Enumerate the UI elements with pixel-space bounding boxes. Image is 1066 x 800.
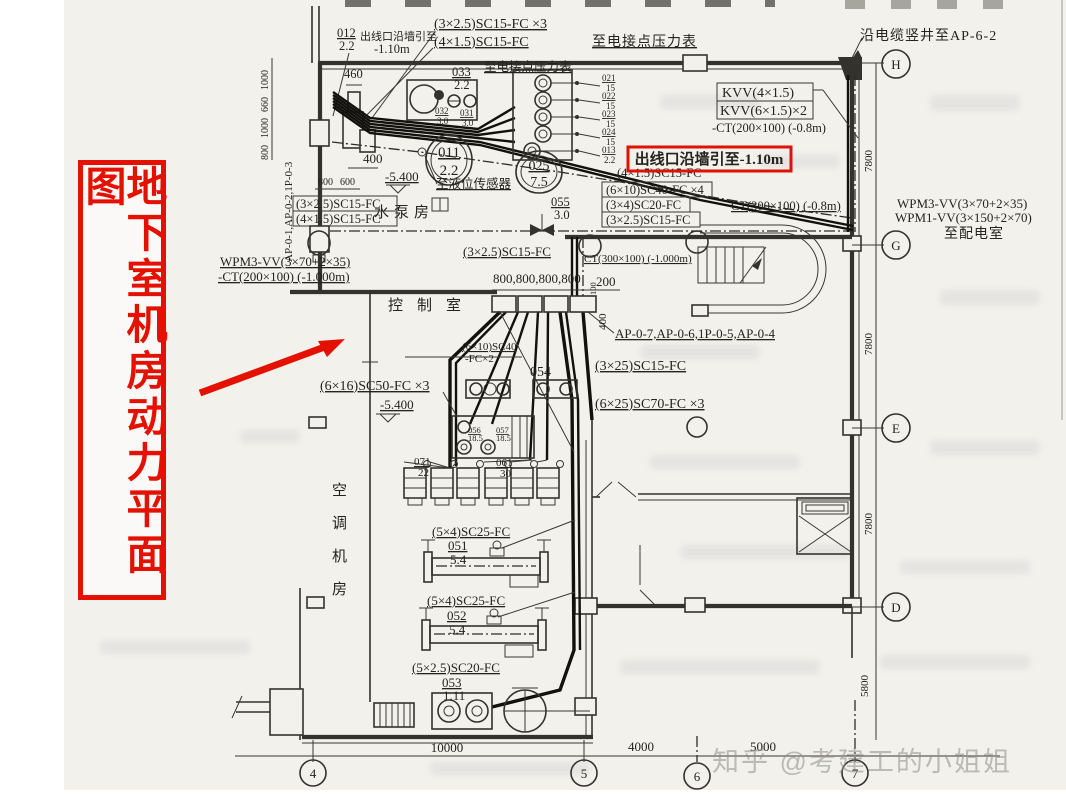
cable-label: (6×10)SC40-FC ×4 (606, 183, 705, 197)
eq-054: 054 (530, 365, 551, 380)
dim-400: 400 (363, 151, 383, 166)
cable-label: (5×2.5)SC20-FC (412, 660, 500, 675)
cable-label: KVV(6×1.5)×2 (720, 104, 807, 119)
cable-label: WPM1-VV(3×150+2×70) (895, 210, 1032, 225)
heat-exchanger-051 (421, 540, 551, 587)
drawing-title-text: 地下室机房动力平面图 (81, 165, 163, 595)
dim-800x4: 800,800,800,800 (493, 271, 581, 286)
eq-012-den: 2.2 (339, 39, 355, 53)
dim-800: 800 (318, 177, 333, 188)
dim-100: 100 (588, 282, 598, 295)
cable-label: (3×2.5)SC15-FC (296, 197, 381, 211)
eq-021-num: 021 (602, 73, 616, 83)
dimension-lines (235, 50, 1000, 789)
eq-012-num: 012 (337, 26, 356, 40)
eq-032-den: 3.0 (437, 116, 449, 126)
room-pump: 水泵房 (374, 204, 434, 221)
dim-7800-a: 7800 (863, 150, 875, 173)
scanned-drawing-page: 012 2.2 出线口沿墙引至 -1.10m (3×2.5)SC15-FC ×3… (0, 0, 1066, 800)
eq-025-den: 7.5 (530, 175, 548, 190)
dist-room-note: 至配电室 (944, 225, 1004, 242)
grid-6: 6 (694, 769, 701, 784)
outlet-note-red: 出线口沿墙引至-1.10m (635, 150, 784, 168)
dim-200: 200 (596, 274, 616, 289)
drawing-labels: 012 2.2 出线口沿墙引至 -1.10m (3×2.5)SC15-FC ×3… (218, 17, 1032, 784)
level-5400-a: -5.400 (385, 169, 419, 184)
watermark-text: 知乎 @考建工的小姐姐 (712, 740, 1066, 779)
eq-056-den: 18.5 (468, 433, 483, 443)
eq-052-num: 052 (447, 608, 467, 623)
cable-label: (6×25)SC70-FC ×3 (595, 397, 705, 412)
cable-label: (3×25)SC15-FC (595, 359, 686, 374)
dim-7800-c: 7800 (863, 513, 875, 536)
eq-013-den: 2.2 (604, 155, 615, 165)
grid-G: G (891, 238, 900, 253)
heat-exchanger-052 (419, 608, 549, 657)
outlet-note-top-level: -1.10m (374, 42, 410, 56)
eq-031-num: 031 (460, 108, 474, 118)
room-ac-char4: 房 (332, 581, 347, 598)
dim-660: 660 (260, 97, 271, 112)
dim-600: 600 (340, 177, 355, 188)
eq-051-den: 5.4 (450, 552, 467, 567)
eq-013-num: 013 (602, 145, 616, 155)
cable-label: (4×1.5)SC15-FC (617, 166, 702, 180)
grid-4: 4 (310, 766, 317, 781)
cable-shaft-note: 沿电缆竖井至AP-6-2 (860, 28, 997, 44)
outlet-note-top: 出线口沿墙引至 (360, 29, 437, 43)
dim-1000a: 1000 (260, 70, 271, 90)
cable-label: (6×10)SC40 (462, 341, 517, 353)
cable-label: (4×1.5)SC15-FC (296, 212, 381, 226)
eq-025-num: 025 (529, 159, 550, 174)
dim-800v: 800 (260, 145, 271, 160)
eq-055-den: 3.0 (554, 208, 570, 222)
cable-label: -CT(200×100) (-1.000m) (218, 269, 350, 284)
grid-E: E (892, 421, 900, 436)
dim-7800-b: 7800 (863, 333, 875, 356)
room-control: 控制室 (388, 297, 475, 314)
cable-label: CT(300×100) (-1.000m) (584, 253, 692, 265)
ap-panels-mid: AP-0-7,AP-0-6,1P-0-5,AP-0-4 (615, 326, 775, 341)
eq-055-num: 055 (551, 195, 570, 209)
level-sensor-note: 至液位传感器 (436, 176, 512, 191)
eq-061-den: 30 (500, 468, 512, 480)
ap-panels-left: AP-0-1,AP-0-2,1P-0-3 (283, 161, 295, 262)
cable-label: (5×4)SC25-FC (432, 524, 510, 539)
cable-label: (3×4)SC20-FC (606, 198, 681, 212)
dim-1000b: 1000 (260, 118, 271, 138)
dim-460: 460 (344, 67, 363, 81)
pressure-gauge-note-mid: 至电接点压力表 (484, 59, 572, 74)
dim-400v: 400 (597, 313, 609, 330)
cable-label: (5×4)SC25-FC (427, 593, 505, 608)
eq-032-num: 032 (435, 106, 449, 116)
eq-022-num: 022 (602, 91, 616, 101)
eq-051-num: 051 (448, 538, 468, 553)
cable-label: CT(300×100) (-0.8m) (731, 199, 841, 213)
cable-label: (3×2.5)SC15-FC ×3 (434, 17, 547, 32)
dim-10000: 10000 (431, 740, 464, 755)
eq-011-num: 011 (438, 145, 460, 161)
eq-052-den: 5.4 (449, 622, 466, 637)
room-ac-char2: 调 (332, 515, 347, 532)
grid-D: D (891, 600, 900, 615)
cable-label: WPM3-VV(3×70+2×35) (897, 196, 1027, 211)
cable-label: (3×2.5)SC15-FC (463, 244, 551, 259)
grid-H: H (891, 57, 900, 72)
eq-053-den: 1.11 (443, 688, 465, 703)
eq-033-num: 033 (452, 65, 471, 79)
eq-033-den: 2.2 (454, 78, 470, 92)
cable-label: (3×2.5)SC15-FC (606, 213, 691, 227)
room-ac-char1: 空 (332, 482, 347, 499)
cable-label: WPM3-VV(3×70+2×35) (220, 254, 350, 269)
grid-5: 5 (581, 766, 588, 781)
eq-024-num: 024 (602, 127, 616, 137)
cable-label: (4×1.5)SC15-FC (434, 35, 529, 50)
cable-label: -CT(200×100) (-0.8m) (712, 121, 826, 135)
cable-label: -FC×2 (465, 353, 494, 365)
level-5400-b: -5.400 (380, 397, 414, 412)
eq-023-num: 023 (602, 109, 616, 119)
eq-031-den: 3.0 (462, 118, 474, 128)
cable-label: KVV(4×1.5) (722, 86, 794, 101)
room-ac-char3: 机 (332, 548, 347, 565)
eq-071-den: 22 (418, 467, 429, 479)
eq-057-den: 18.5 (496, 433, 511, 443)
page-edge-line (1061, 0, 1063, 420)
cable-label: (6×16)SC50-FC ×3 (320, 379, 430, 394)
dim-4000: 4000 (628, 739, 654, 754)
red-title-label: 地下室机房动力平面图 (78, 160, 166, 600)
pressure-gauge-note-top: 至电接点压力表 (592, 33, 697, 50)
dim-5800: 5800 (859, 675, 871, 698)
